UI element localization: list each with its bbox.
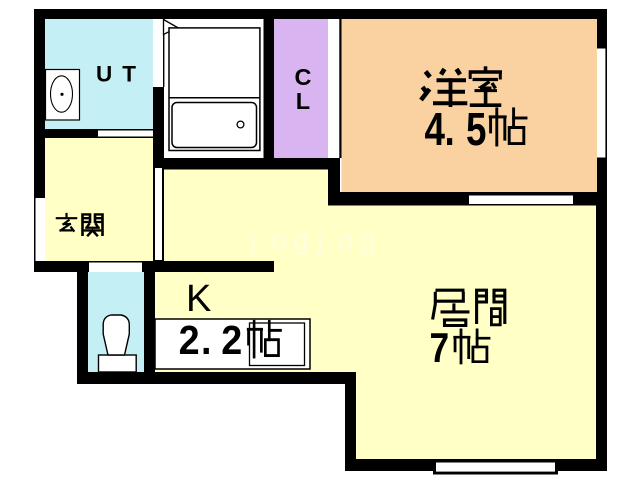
svg-text:7: 7 [430, 325, 450, 371]
svg-text:C: C [295, 64, 312, 90]
svg-text:2: 2 [221, 318, 242, 364]
svg-text:K: K [186, 278, 211, 320]
svg-text:.: . [445, 103, 455, 155]
svg-text:4: 4 [425, 103, 445, 155]
svg-text:L: L [296, 88, 310, 114]
svg-text:.: . [201, 318, 211, 364]
svg-text:2: 2 [179, 318, 200, 364]
svg-text:UT: UT [96, 62, 146, 87]
svg-text:5: 5 [466, 103, 486, 155]
